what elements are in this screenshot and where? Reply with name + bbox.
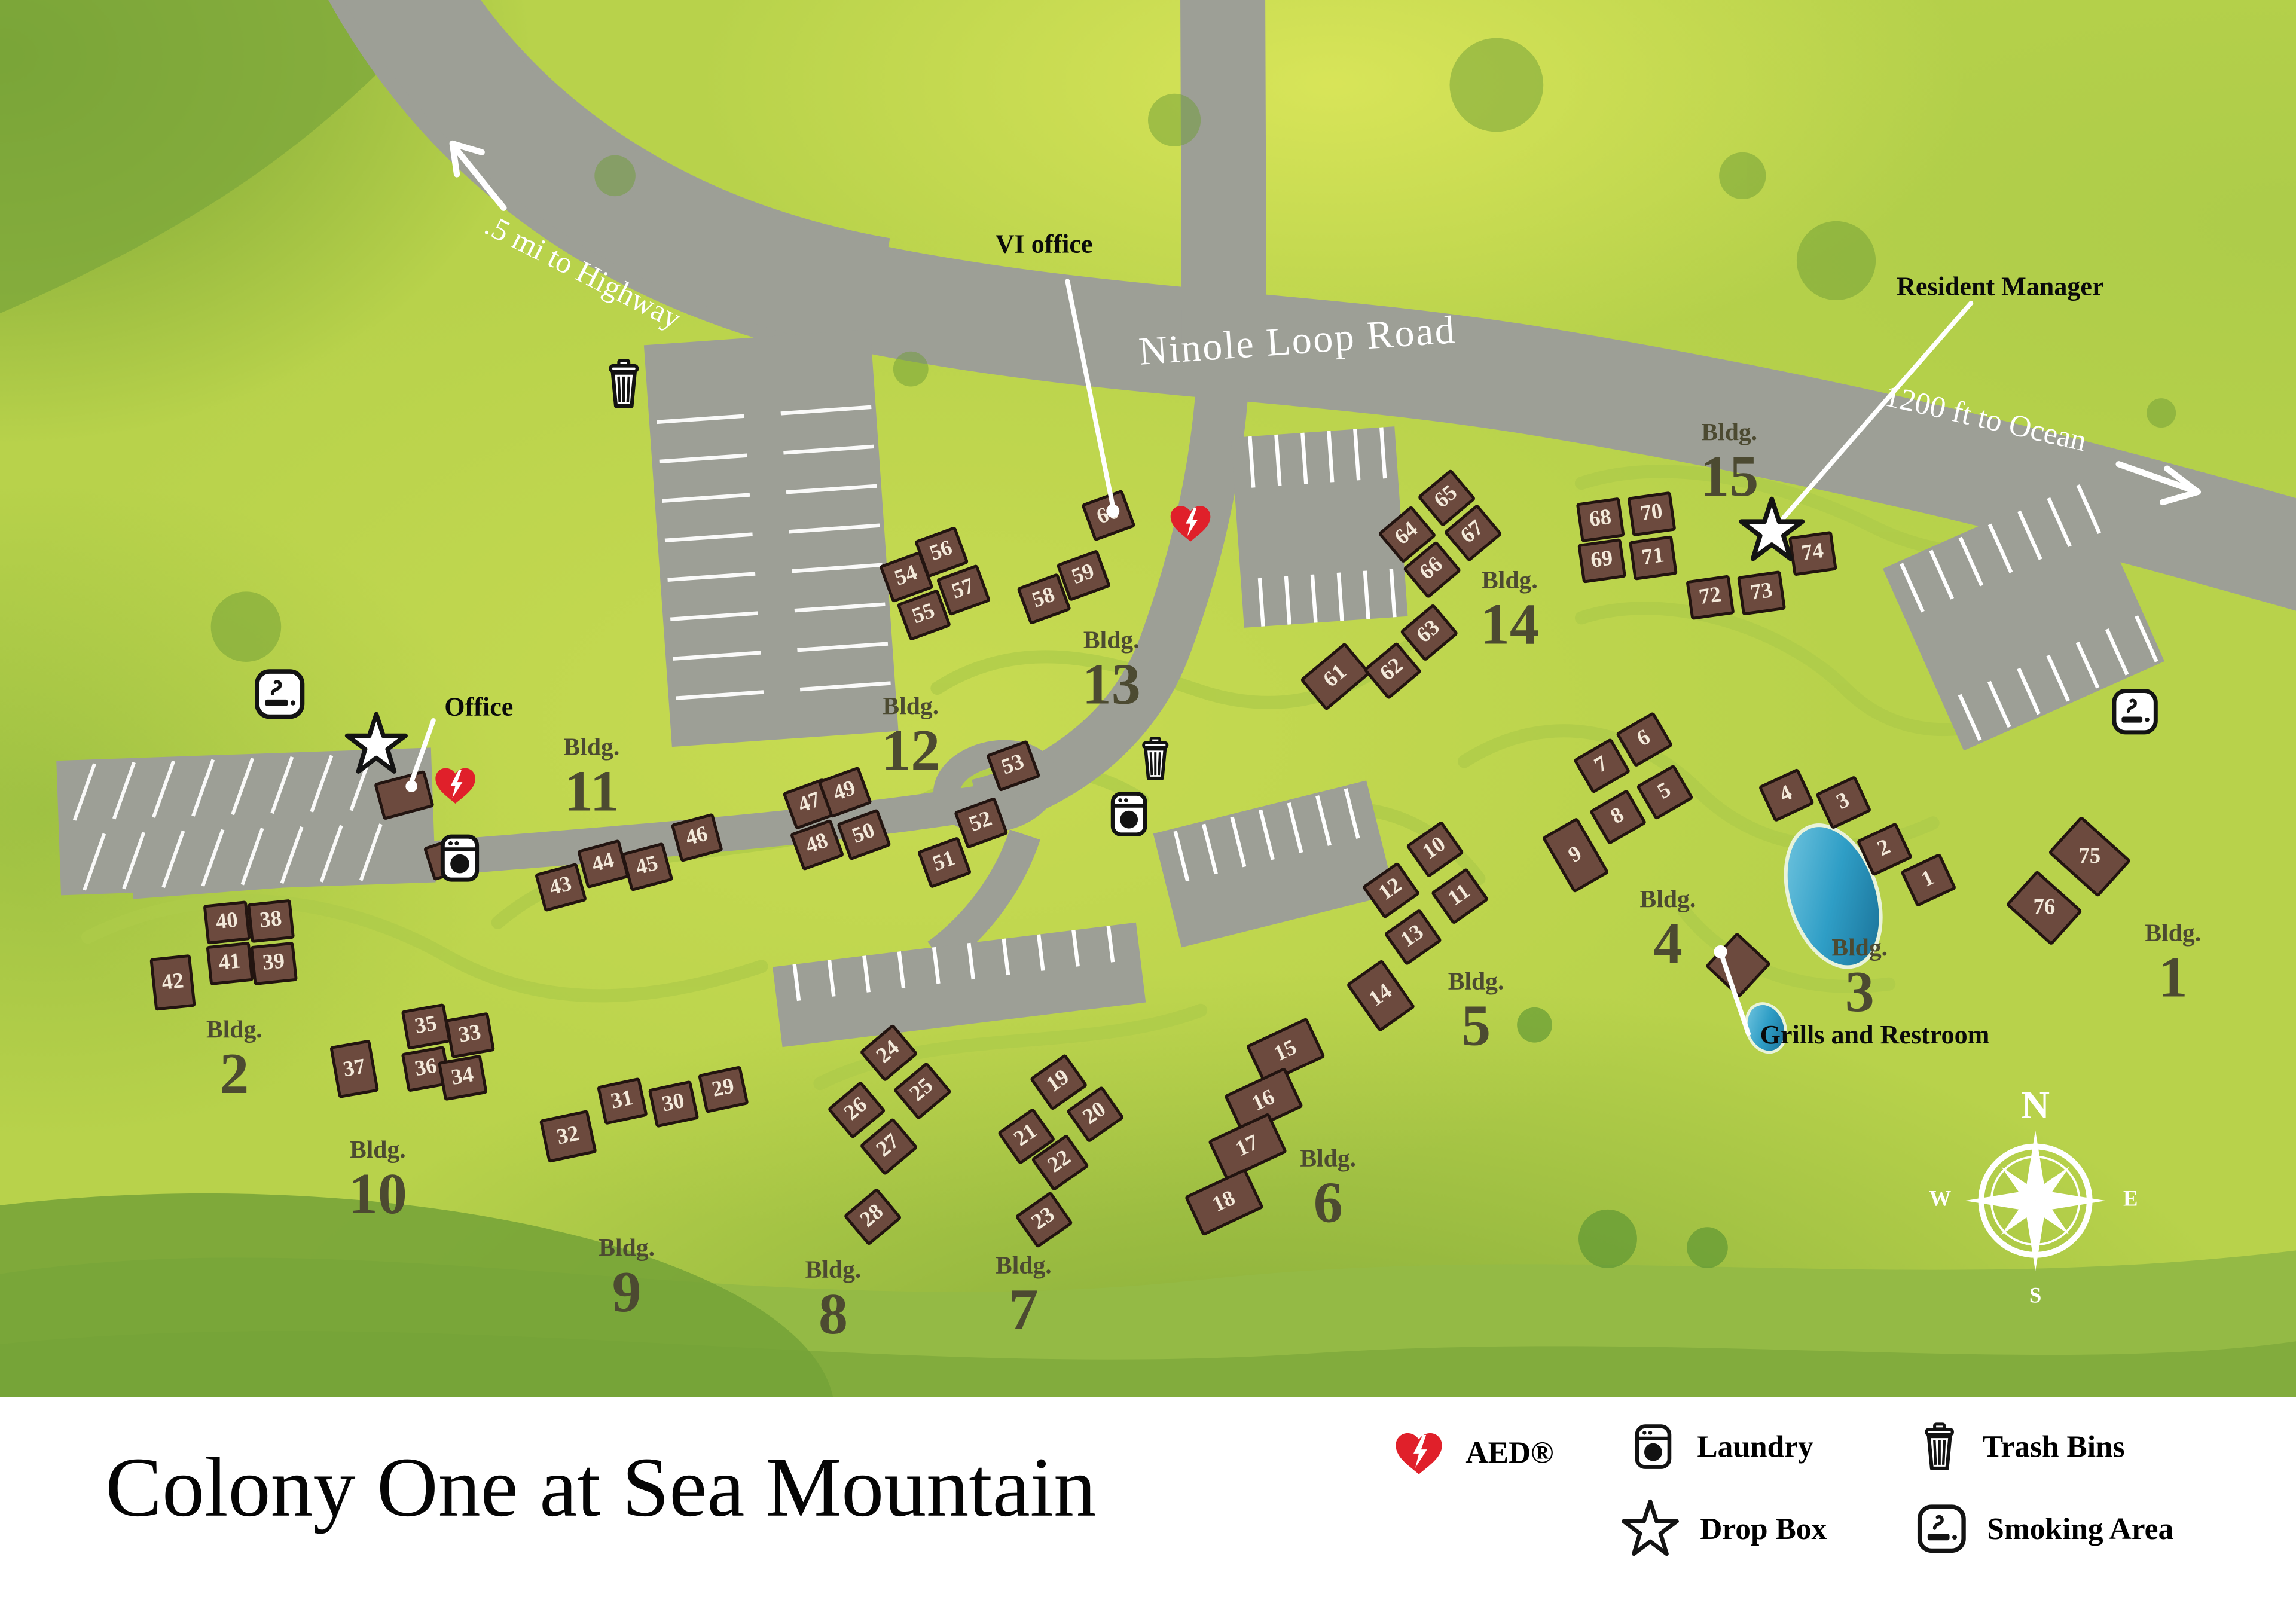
legend-label: Drop Box (1700, 1510, 1827, 1547)
laundry-icon (1628, 1419, 1678, 1474)
unit-6: 6 (1616, 712, 1674, 768)
compass-rose: N E S W (1930, 1091, 2141, 1310)
building-13-label: Bldg.13 (1082, 627, 1141, 713)
unit-34: 34 (438, 1055, 488, 1101)
unit-8: 8 (1589, 789, 1647, 845)
unit-73: 73 (1737, 570, 1786, 616)
unit-46: 46 (671, 813, 723, 862)
unit-38: 38 (247, 899, 295, 943)
legend-item-laundry: Laundry (1628, 1415, 1813, 1479)
smoking-area-icon (252, 667, 307, 722)
unit-51: 51 (917, 836, 972, 889)
unit-52: 52 (954, 797, 1009, 849)
unit-70: 70 (1627, 491, 1676, 537)
unit-12: 12 (1361, 862, 1420, 919)
unit-53: 53 (986, 740, 1041, 792)
unit-3: 3 (1815, 776, 1872, 830)
unit-60: 60 (1081, 489, 1136, 541)
vi-office-label: VI office (996, 229, 1093, 259)
building-11-label: Bldg.11 (564, 734, 620, 820)
trash-icon (599, 358, 649, 410)
building-15-label: Bldg.15 (1700, 420, 1758, 506)
building-14-label: Bldg.14 (1480, 567, 1539, 654)
unit-5: 5 (1636, 764, 1694, 820)
legend-label: Laundry (1697, 1428, 1813, 1465)
legend-item-trash: Trash Bins (1915, 1415, 2124, 1479)
unit-11: 11 (1431, 868, 1489, 925)
building-6-label: Bldg.6 (1300, 1146, 1356, 1232)
office-label: Office (444, 692, 513, 722)
unit-35: 35 (401, 1003, 451, 1050)
legend-item-aed: AED® (1391, 1421, 1554, 1485)
unit-41: 41 (206, 942, 254, 985)
unit-42: 42 (149, 954, 196, 1011)
trash-icon (1134, 735, 1177, 781)
unit-18: 18 (1184, 1168, 1264, 1236)
unit-76: 76 (2005, 870, 2083, 946)
unit-39: 39 (250, 942, 298, 985)
unit-23: 23 (1015, 1191, 1073, 1248)
unit-61: 61 (1300, 642, 1371, 711)
laundry-icon (433, 832, 486, 884)
unit-71: 71 (1629, 535, 1678, 581)
unit-17: 17 (1208, 1112, 1287, 1180)
unit-25: 25 (893, 1062, 952, 1121)
building-4-label: Bldg.4 (1640, 887, 1696, 973)
legend-label: Trash Bins (1983, 1428, 2125, 1465)
building-8-label: Bldg.8 (805, 1257, 862, 1343)
unit-28: 28 (843, 1187, 902, 1246)
unit-24: 24 (859, 1024, 918, 1082)
legend-item-smoking: Smoking Area (1915, 1497, 2173, 1561)
unit-75: 75 (2048, 816, 2131, 897)
building-10-label: Bldg.10 (349, 1137, 407, 1223)
unit-7: 7 (1573, 738, 1631, 794)
drop-box-icon (1620, 1498, 1681, 1559)
unit-1: 1 (1900, 853, 1957, 907)
unit-50: 50 (836, 808, 891, 860)
unit-4: 4 (1758, 768, 1815, 822)
aed-icon (1391, 1428, 1447, 1477)
unit-63: 63 (1400, 603, 1459, 662)
unit-62: 62 (1363, 642, 1422, 700)
compass-east: E (2123, 1188, 2138, 1213)
building-2-label: Bldg.2 (206, 1017, 262, 1103)
building-1-label: Bldg.1 (2145, 920, 2201, 1006)
smoking-area-icon (1915, 1503, 1968, 1555)
unit-2: 2 (1857, 822, 1913, 877)
building-3-label: Bldg.3 (1831, 935, 1888, 1021)
unit-72: 72 (1686, 575, 1735, 620)
compass-west: W (1929, 1188, 1952, 1213)
page-title: Colony One at Sea Mountain (105, 1438, 1096, 1536)
building-7-label: Bldg.7 (996, 1253, 1052, 1339)
unit-68: 68 (1576, 497, 1625, 543)
grills-label: Grills and Restroom (1760, 1020, 1990, 1051)
unit-10: 10 (1406, 820, 1464, 878)
unit-29: 29 (698, 1065, 749, 1113)
drop-box-icon (1736, 495, 1807, 566)
drop-box-icon (343, 710, 410, 778)
unit-44: 44 (577, 839, 630, 889)
building-12-label: Bldg.12 (881, 694, 940, 780)
unit-31: 31 (597, 1077, 648, 1125)
unit-37: 37 (329, 1039, 379, 1098)
resident-manager-label: Resident Manager (1897, 271, 2103, 302)
unit-45: 45 (621, 842, 673, 891)
unit-14: 14 (1346, 959, 1415, 1032)
map-canvas: 7576Bldg.14038413942Bldg.24321Bldg.37685… (0, 0, 2296, 1397)
legend-label: AED® (1465, 1434, 1553, 1471)
building-9-label: Bldg.9 (599, 1235, 655, 1321)
smoking-area-icon (2110, 687, 2160, 737)
unit-43: 43 (535, 863, 587, 912)
unit-30: 30 (648, 1080, 700, 1128)
aed-icon (1167, 501, 1214, 545)
laundry-icon (1104, 789, 1154, 839)
compass-north: N (2021, 1083, 2050, 1128)
unit-33: 33 (445, 1012, 495, 1058)
trash-icon (1915, 1419, 1964, 1474)
aed-icon (432, 763, 478, 807)
compass-south: S (2029, 1285, 2041, 1310)
unit-32: 32 (539, 1110, 597, 1163)
unit-69: 69 (1577, 538, 1626, 584)
building-5-label: Bldg.5 (1448, 969, 1504, 1055)
unit-40: 40 (203, 900, 251, 944)
legend-label: Smoking Area (1987, 1510, 2173, 1547)
legend-item-drop-box: Drop Box (1620, 1497, 1827, 1561)
unit-13: 13 (1384, 908, 1442, 966)
property-map-page: 7576Bldg.14038413942Bldg.24321Bldg.37685… (0, 0, 2296, 1609)
